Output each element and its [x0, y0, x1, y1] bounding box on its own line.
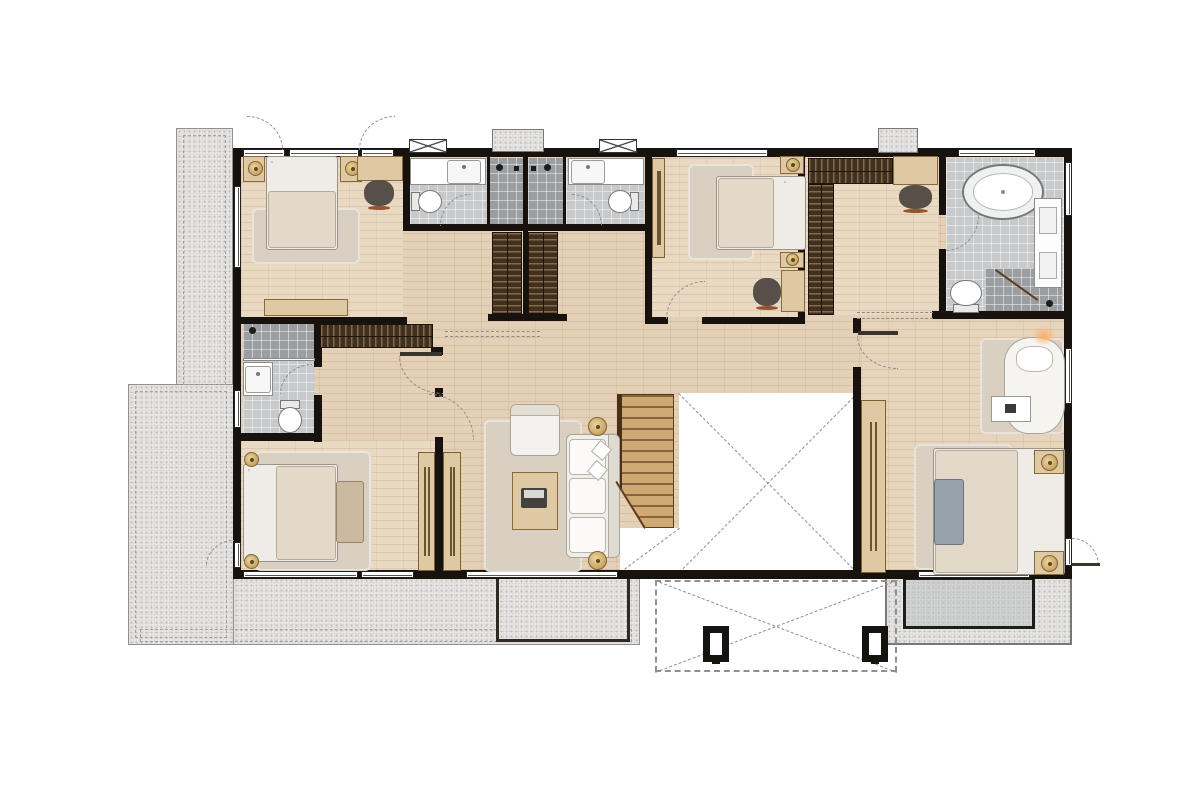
laptop: [521, 488, 547, 508]
void-cross: [679, 393, 857, 572]
bed1-wardrobe: [418, 452, 435, 571]
side-table-master: [991, 396, 1031, 422]
window-mbath-right: [1065, 162, 1072, 216]
shower-glass-c: [243, 358, 315, 361]
console-bed3: [264, 299, 348, 316]
bed2-wardrobe: [652, 158, 665, 258]
window-bed3-left: [234, 186, 241, 268]
lamp-bed1-bottom: [244, 554, 259, 569]
showerhead-mbath: [1046, 300, 1053, 307]
chair-closet: [899, 185, 932, 209]
window-bed1-bottom-a: [243, 571, 358, 578]
window-family-bottom: [466, 571, 618, 578]
wall-suite-left: [853, 367, 861, 578]
lamp-bed1-top: [244, 452, 259, 467]
door-arc-bed3-right: [359, 116, 395, 150]
porch-cross: [655, 580, 897, 672]
lamp-master-bottom: [1041, 555, 1058, 572]
wall-shower-divider: [523, 153, 528, 231]
toilet-bath-b: [608, 189, 639, 214]
window-bed2-top: [676, 149, 768, 157]
wall-closet-mbath-b: [939, 249, 946, 318]
drain-a: [514, 166, 519, 171]
sconce-glow: [1032, 326, 1056, 346]
wall-bed2-left: [645, 148, 652, 324]
door-leaf-wing: [400, 352, 442, 356]
showerhead-c: [249, 327, 256, 334]
hall-wardrobe-right: [528, 232, 558, 314]
ledge-top-center: [492, 129, 544, 152]
chair-bed3: [364, 180, 394, 206]
window-bed1-terrace-door: [234, 542, 241, 568]
lamp-family-bottom: [588, 551, 607, 570]
window-bathC-left: [234, 390, 241, 428]
wall-bathC-bottom: [233, 433, 322, 441]
family-wardrobe: [443, 452, 461, 571]
ac-unit-left: [409, 139, 447, 153]
dresser-closet: [893, 156, 938, 185]
wall-bed2-bottom-b: [702, 317, 805, 324]
lamp-bed2-bottom: [786, 253, 799, 266]
door-leaf-balcony: [1072, 563, 1100, 566]
stair-cut-line: [617, 481, 646, 528]
wall-bed1-right-b: [435, 437, 443, 578]
sink-bath-c: [245, 366, 271, 393]
ac-unit-right: [599, 139, 637, 153]
sink-bath-a: [447, 160, 481, 184]
porch-column-left: [703, 626, 729, 662]
bed-bed2: [716, 176, 806, 250]
opening-dash-hall: [445, 331, 540, 337]
master-wardrobe: [861, 400, 886, 573]
wall-hallcloset-cap: [488, 314, 567, 321]
family-balcony: [496, 578, 630, 642]
bed-bed1: [243, 464, 338, 562]
toilet-bath-a: [411, 189, 442, 214]
wall-bed3-bath: [403, 148, 410, 231]
armchair-family: [510, 404, 560, 456]
wall-closet-mbath-a: [939, 148, 946, 215]
porch-column-right: [862, 626, 888, 662]
lamp-family-top: [588, 417, 607, 436]
door-arc-bed3-left: [247, 116, 283, 150]
master-balcony-planter: [903, 577, 1035, 629]
desk-bed2: [781, 270, 805, 312]
bench-master: [934, 479, 964, 545]
terrace-left-dash: [135, 391, 227, 638]
bathtub: [962, 164, 1044, 220]
bed-bed3: [266, 156, 338, 250]
chair-bed2: [753, 278, 781, 306]
window-mbath-top: [958, 149, 1036, 157]
opening-dash-master: [857, 312, 933, 319]
ledge-top-right: [878, 128, 918, 153]
bench-bed1: [336, 481, 364, 543]
desk-bed3: [357, 156, 403, 181]
wall-showerB-bathB: [563, 153, 566, 231]
window-balcony-door: [1065, 538, 1072, 566]
lamp-bed3-left: [248, 161, 263, 176]
toilet-bath-c: [277, 400, 303, 433]
closet-wardrobe-left: [808, 184, 834, 315]
shower-glass-mbath: [996, 269, 1038, 299]
hall-wardrobe-left: [492, 232, 522, 314]
closet-wardrobe-top: [808, 158, 893, 184]
window-master-right: [1065, 348, 1072, 404]
wall-bathA-shower: [487, 153, 490, 231]
sofa-family: [566, 434, 620, 558]
sink-bath-b: [571, 160, 605, 184]
floor-plan-canvas: [0, 0, 1200, 800]
drain-b: [531, 166, 536, 171]
vanity-mbath: [1034, 198, 1062, 288]
void-notch-line: [620, 528, 679, 572]
door-leaf-master: [858, 331, 898, 335]
wall-bed2-bottom-a: [645, 317, 668, 324]
bed3-wardrobe: [320, 324, 433, 348]
door-arc-balcony: [1072, 538, 1099, 566]
terrace-top-left-dash: [183, 135, 226, 385]
toilet-mbath: [949, 280, 983, 313]
lamp-master-top: [1041, 454, 1058, 471]
lamp-bed2-top: [786, 158, 800, 172]
showerhead-b: [544, 164, 551, 171]
window-bed1-bottom-b: [361, 571, 414, 578]
showerhead-a: [496, 164, 503, 171]
